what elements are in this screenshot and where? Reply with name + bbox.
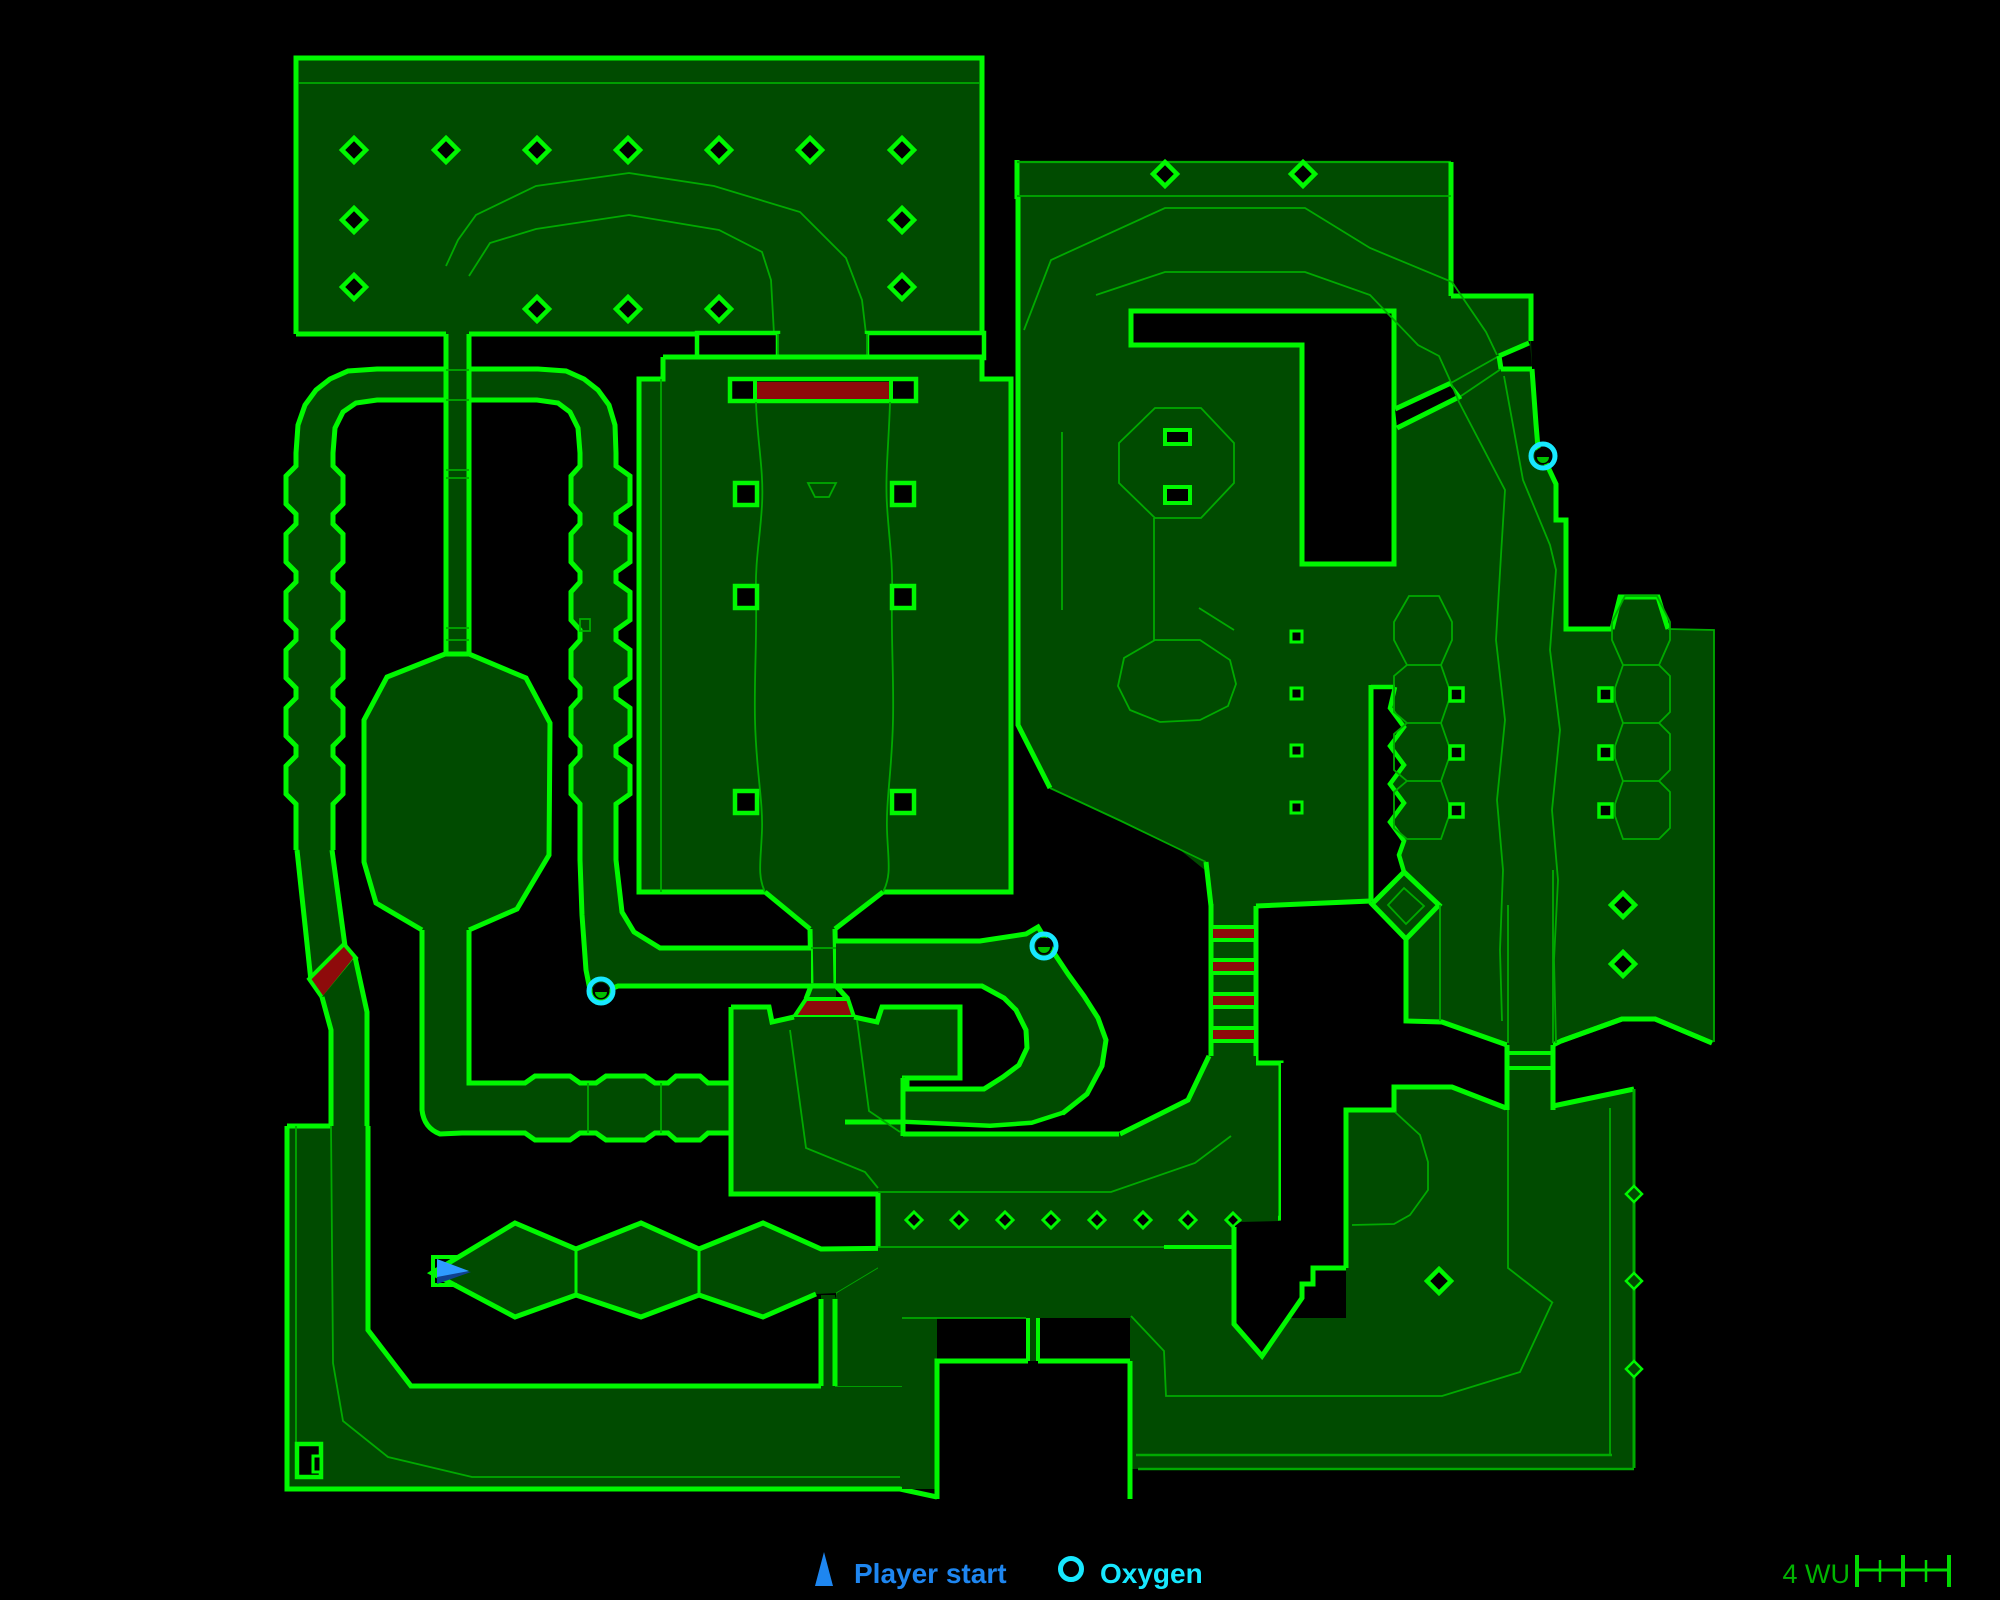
svg-text:Player start: Player start [854, 1558, 1007, 1589]
svg-text:4 WU: 4 WU [1783, 1559, 1851, 1589]
svg-text:Oxygen: Oxygen [1100, 1558, 1203, 1589]
